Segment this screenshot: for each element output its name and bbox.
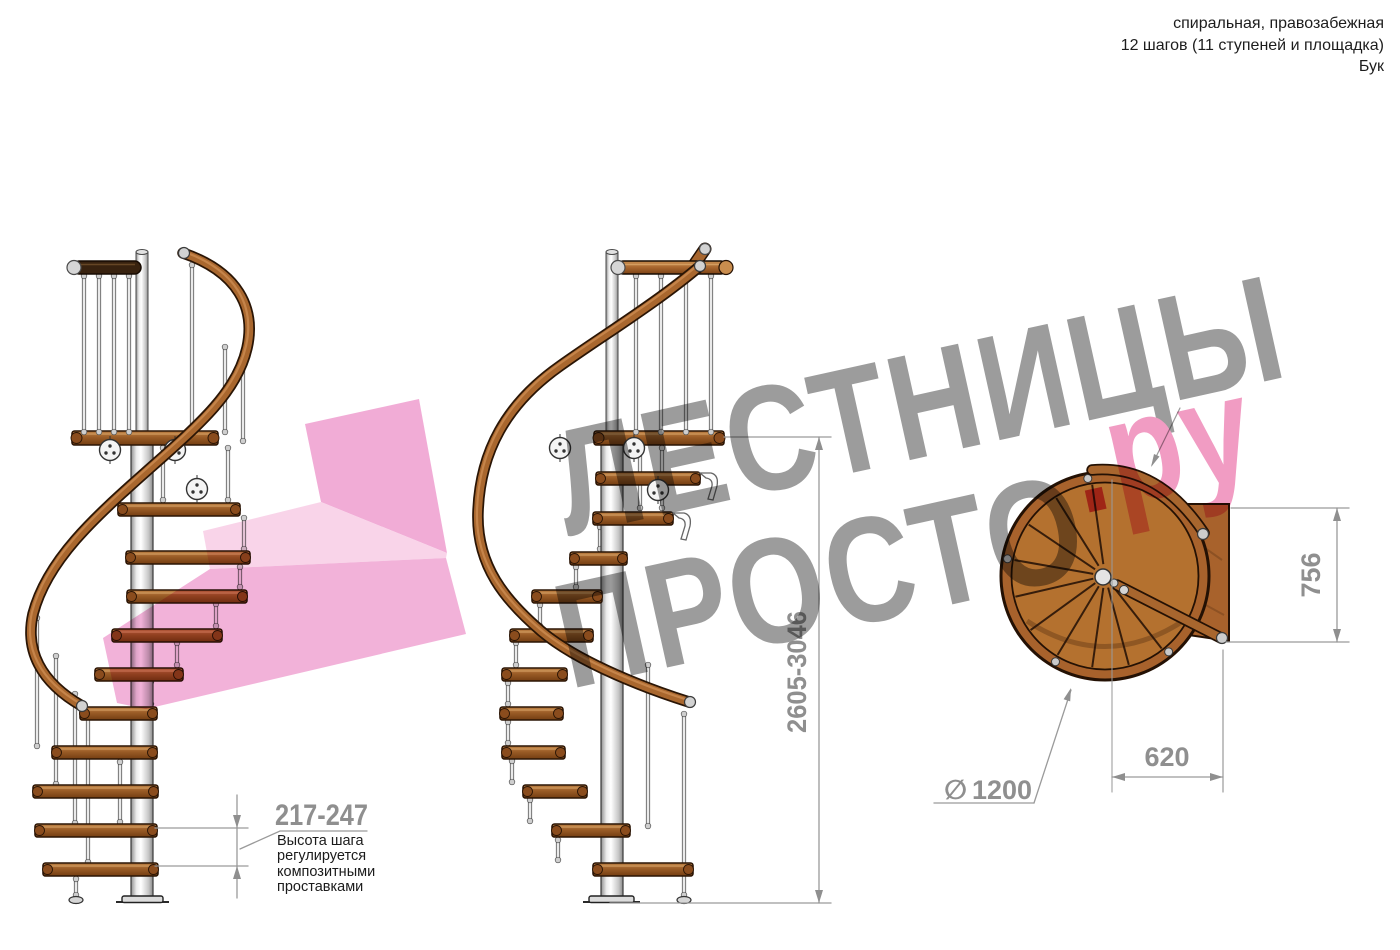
stair-step — [112, 629, 222, 642]
connector-plate — [187, 479, 208, 500]
arrowhead — [815, 437, 823, 450]
arrowhead — [233, 815, 241, 828]
connector-plate — [100, 440, 121, 461]
pole-cap — [136, 250, 148, 255]
pole-cap — [606, 250, 618, 255]
step-end — [556, 748, 566, 758]
ring-connector-dot — [1165, 648, 1173, 656]
baluster-rod — [127, 274, 130, 434]
step-end — [208, 433, 219, 444]
rod-knob — [225, 445, 231, 451]
pole-base-flange — [589, 896, 634, 903]
rod-knob — [555, 837, 561, 843]
arrowhead — [1112, 773, 1125, 781]
step-end — [238, 592, 248, 602]
step-end — [148, 709, 158, 719]
arrowhead — [1333, 629, 1341, 642]
center-pole-upper — [136, 252, 148, 445]
step-end — [510, 631, 520, 641]
title-type: спиральная, правозабежная — [1121, 13, 1384, 35]
rod-knob — [505, 701, 511, 707]
rod-knob — [681, 711, 687, 717]
plate-dot — [112, 451, 115, 454]
rod-knob — [73, 876, 79, 882]
top-handrail-bar — [73, 261, 141, 274]
step-end — [241, 553, 251, 563]
rod-knob — [34, 743, 40, 749]
rod-knob — [659, 445, 665, 451]
top-handrail-bar — [617, 261, 727, 274]
stair-step — [33, 785, 158, 798]
plan-top-view — [1001, 470, 1229, 680]
stair-step — [532, 590, 602, 603]
step-end — [684, 865, 694, 875]
stair-step — [593, 863, 693, 876]
diameter-label: 1200 — [972, 775, 1032, 805]
step-end — [714, 433, 725, 444]
arrowhead — [1333, 508, 1341, 521]
rod-knob — [659, 505, 665, 511]
handrail-end-cap — [719, 261, 733, 275]
plate-dot — [636, 449, 639, 452]
rod-knob — [708, 429, 714, 435]
rod-knob — [222, 344, 228, 350]
rod-knob — [81, 429, 87, 435]
plate-dot — [199, 490, 202, 493]
drawing-canvas: 2605-3046 756 620 ∅ 1200 — [0, 0, 1400, 950]
arrowhead — [1210, 773, 1223, 781]
stair-step — [52, 746, 157, 759]
baluster-rod — [97, 274, 100, 434]
plate-dot — [652, 491, 655, 494]
handrail-end-cap — [685, 697, 696, 708]
rod-knob — [683, 429, 689, 435]
step-end — [618, 554, 628, 564]
step-height-note: Высота шага регулируется композитными пр… — [277, 834, 375, 896]
rod-knob — [117, 759, 123, 765]
baluster-rod — [112, 274, 115, 434]
total-height-label: 2605-3046 — [782, 611, 812, 733]
baluster-rod — [242, 516, 245, 551]
step-end — [502, 748, 512, 758]
step-end — [691, 474, 701, 484]
stair-step — [35, 824, 157, 837]
plate-dot — [191, 490, 194, 493]
title-block: спиральная, правозабежная 12 шагов (11 с… — [1121, 13, 1384, 78]
arrowhead — [233, 866, 241, 879]
plate-dot — [656, 484, 659, 487]
baluster-rod — [634, 274, 637, 434]
handrail-end-cap — [700, 244, 711, 255]
rod-knob — [126, 429, 132, 435]
stair-step — [80, 707, 157, 720]
plate-dot — [195, 483, 198, 486]
rod-knob — [527, 818, 533, 824]
arrowhead — [1064, 688, 1071, 701]
step-end — [593, 592, 603, 602]
platform-depth-label: 756 — [1296, 552, 1326, 597]
pole-fitting — [1110, 579, 1118, 587]
step-end — [149, 787, 159, 797]
step-end — [52, 748, 62, 758]
step-end — [213, 631, 223, 641]
handrail-end-cap — [1198, 529, 1209, 540]
connector-plate — [550, 438, 571, 459]
handrail-end-cap — [77, 701, 88, 712]
rod-knob — [213, 623, 219, 629]
rod-knob — [658, 429, 664, 435]
stair-step — [118, 503, 240, 516]
baluster-rod — [684, 274, 687, 434]
step-end — [596, 474, 606, 484]
ring-connector-dot — [1084, 475, 1092, 483]
center-pole-upper — [606, 252, 618, 445]
rod-knob — [111, 429, 117, 435]
arrowhead — [815, 890, 823, 903]
step-end — [118, 505, 128, 515]
rod-knob — [645, 823, 651, 829]
step-end — [523, 787, 533, 797]
baluster-rod — [226, 446, 229, 502]
stair-step — [126, 551, 250, 564]
connector-plate — [624, 438, 645, 459]
step-end — [174, 670, 184, 680]
rod-knob — [222, 429, 228, 435]
step-bracket — [673, 513, 690, 540]
center-pole-top — [1095, 569, 1111, 585]
plate-dot — [632, 442, 635, 445]
leader-line — [1034, 690, 1071, 803]
rod-knob — [573, 584, 579, 590]
step-end — [502, 670, 512, 680]
step-end — [558, 670, 568, 680]
step-end — [593, 865, 603, 875]
left-staircase-elevation — [30, 248, 251, 904]
center-staircase-elevation — [477, 244, 733, 904]
rod-knob — [241, 515, 247, 521]
rod-knob — [633, 429, 639, 435]
diameter-symbol: ∅ — [944, 775, 967, 805]
step-end — [570, 554, 580, 564]
handrail-end-cap — [67, 261, 81, 275]
rod-knob — [555, 857, 561, 863]
step-end — [148, 826, 158, 836]
step-end — [126, 553, 136, 563]
step-end — [593, 433, 604, 444]
plate-dot — [660, 491, 663, 494]
plate-dot — [177, 451, 180, 454]
step-end — [552, 826, 562, 836]
arrowhead — [1151, 454, 1160, 467]
step-end — [71, 433, 82, 444]
rod-knob — [637, 505, 643, 511]
plate-dot — [108, 444, 111, 447]
stair-step — [593, 512, 673, 525]
plate-dot — [104, 451, 107, 454]
baluster-rod — [82, 274, 85, 434]
step-end — [532, 592, 542, 602]
handrail-end-cap — [179, 248, 190, 259]
pole-base-flange — [122, 896, 163, 903]
rod-knob — [237, 584, 243, 590]
step-end — [621, 826, 631, 836]
step-end — [35, 826, 45, 836]
rod-knob — [240, 438, 246, 444]
rod-knob — [513, 662, 519, 668]
staircase-drawing: 2605-3046 756 620 ∅ 1200 — [0, 0, 1400, 950]
plate-dot — [558, 442, 561, 445]
rod-knob — [53, 653, 59, 659]
rod-knob — [509, 779, 515, 785]
baluster-rod — [54, 654, 57, 786]
step-height-label: 217-247 — [275, 799, 368, 832]
ring-connector-dot — [1052, 658, 1060, 666]
step-end — [148, 748, 158, 758]
step-end — [500, 709, 510, 719]
plate-dot — [562, 449, 565, 452]
rod-knob — [505, 740, 511, 746]
stair-step — [43, 863, 158, 876]
handrail-end-cap — [695, 261, 706, 272]
rod-knob — [225, 497, 231, 503]
step-end — [554, 709, 564, 719]
stair-step — [596, 472, 700, 485]
rail-connector — [1120, 586, 1129, 595]
handrail-end-cap — [611, 261, 625, 275]
step-end — [664, 514, 674, 524]
rod-knob — [645, 662, 651, 668]
baluster-rod — [709, 274, 712, 434]
step-end — [112, 631, 122, 641]
title-material: Бук — [1121, 56, 1384, 78]
step-end — [33, 787, 43, 797]
step-end — [127, 592, 137, 602]
step-bracket — [700, 473, 717, 500]
plate-dot — [554, 449, 557, 452]
step-end — [43, 865, 53, 875]
connector-plate — [648, 480, 669, 501]
step-end — [95, 670, 105, 680]
rod-knob — [237, 564, 243, 570]
rod-knob — [96, 429, 102, 435]
plate-dot — [628, 449, 631, 452]
platform-width-label: 620 — [1144, 742, 1189, 772]
ring-connector-dot — [1004, 555, 1012, 563]
step-end — [231, 505, 241, 515]
rod-knob — [174, 662, 180, 668]
stair-step — [95, 668, 183, 681]
rod-knob — [160, 497, 166, 503]
step-end — [584, 631, 594, 641]
step-end — [593, 514, 603, 524]
rod-foot — [69, 897, 83, 904]
stair-step — [127, 590, 247, 603]
title-steps: 12 шагов (11 ступеней и площадка) — [1121, 35, 1384, 57]
baluster-rod — [190, 263, 193, 434]
stair-step — [552, 824, 630, 837]
step-end — [578, 787, 588, 797]
